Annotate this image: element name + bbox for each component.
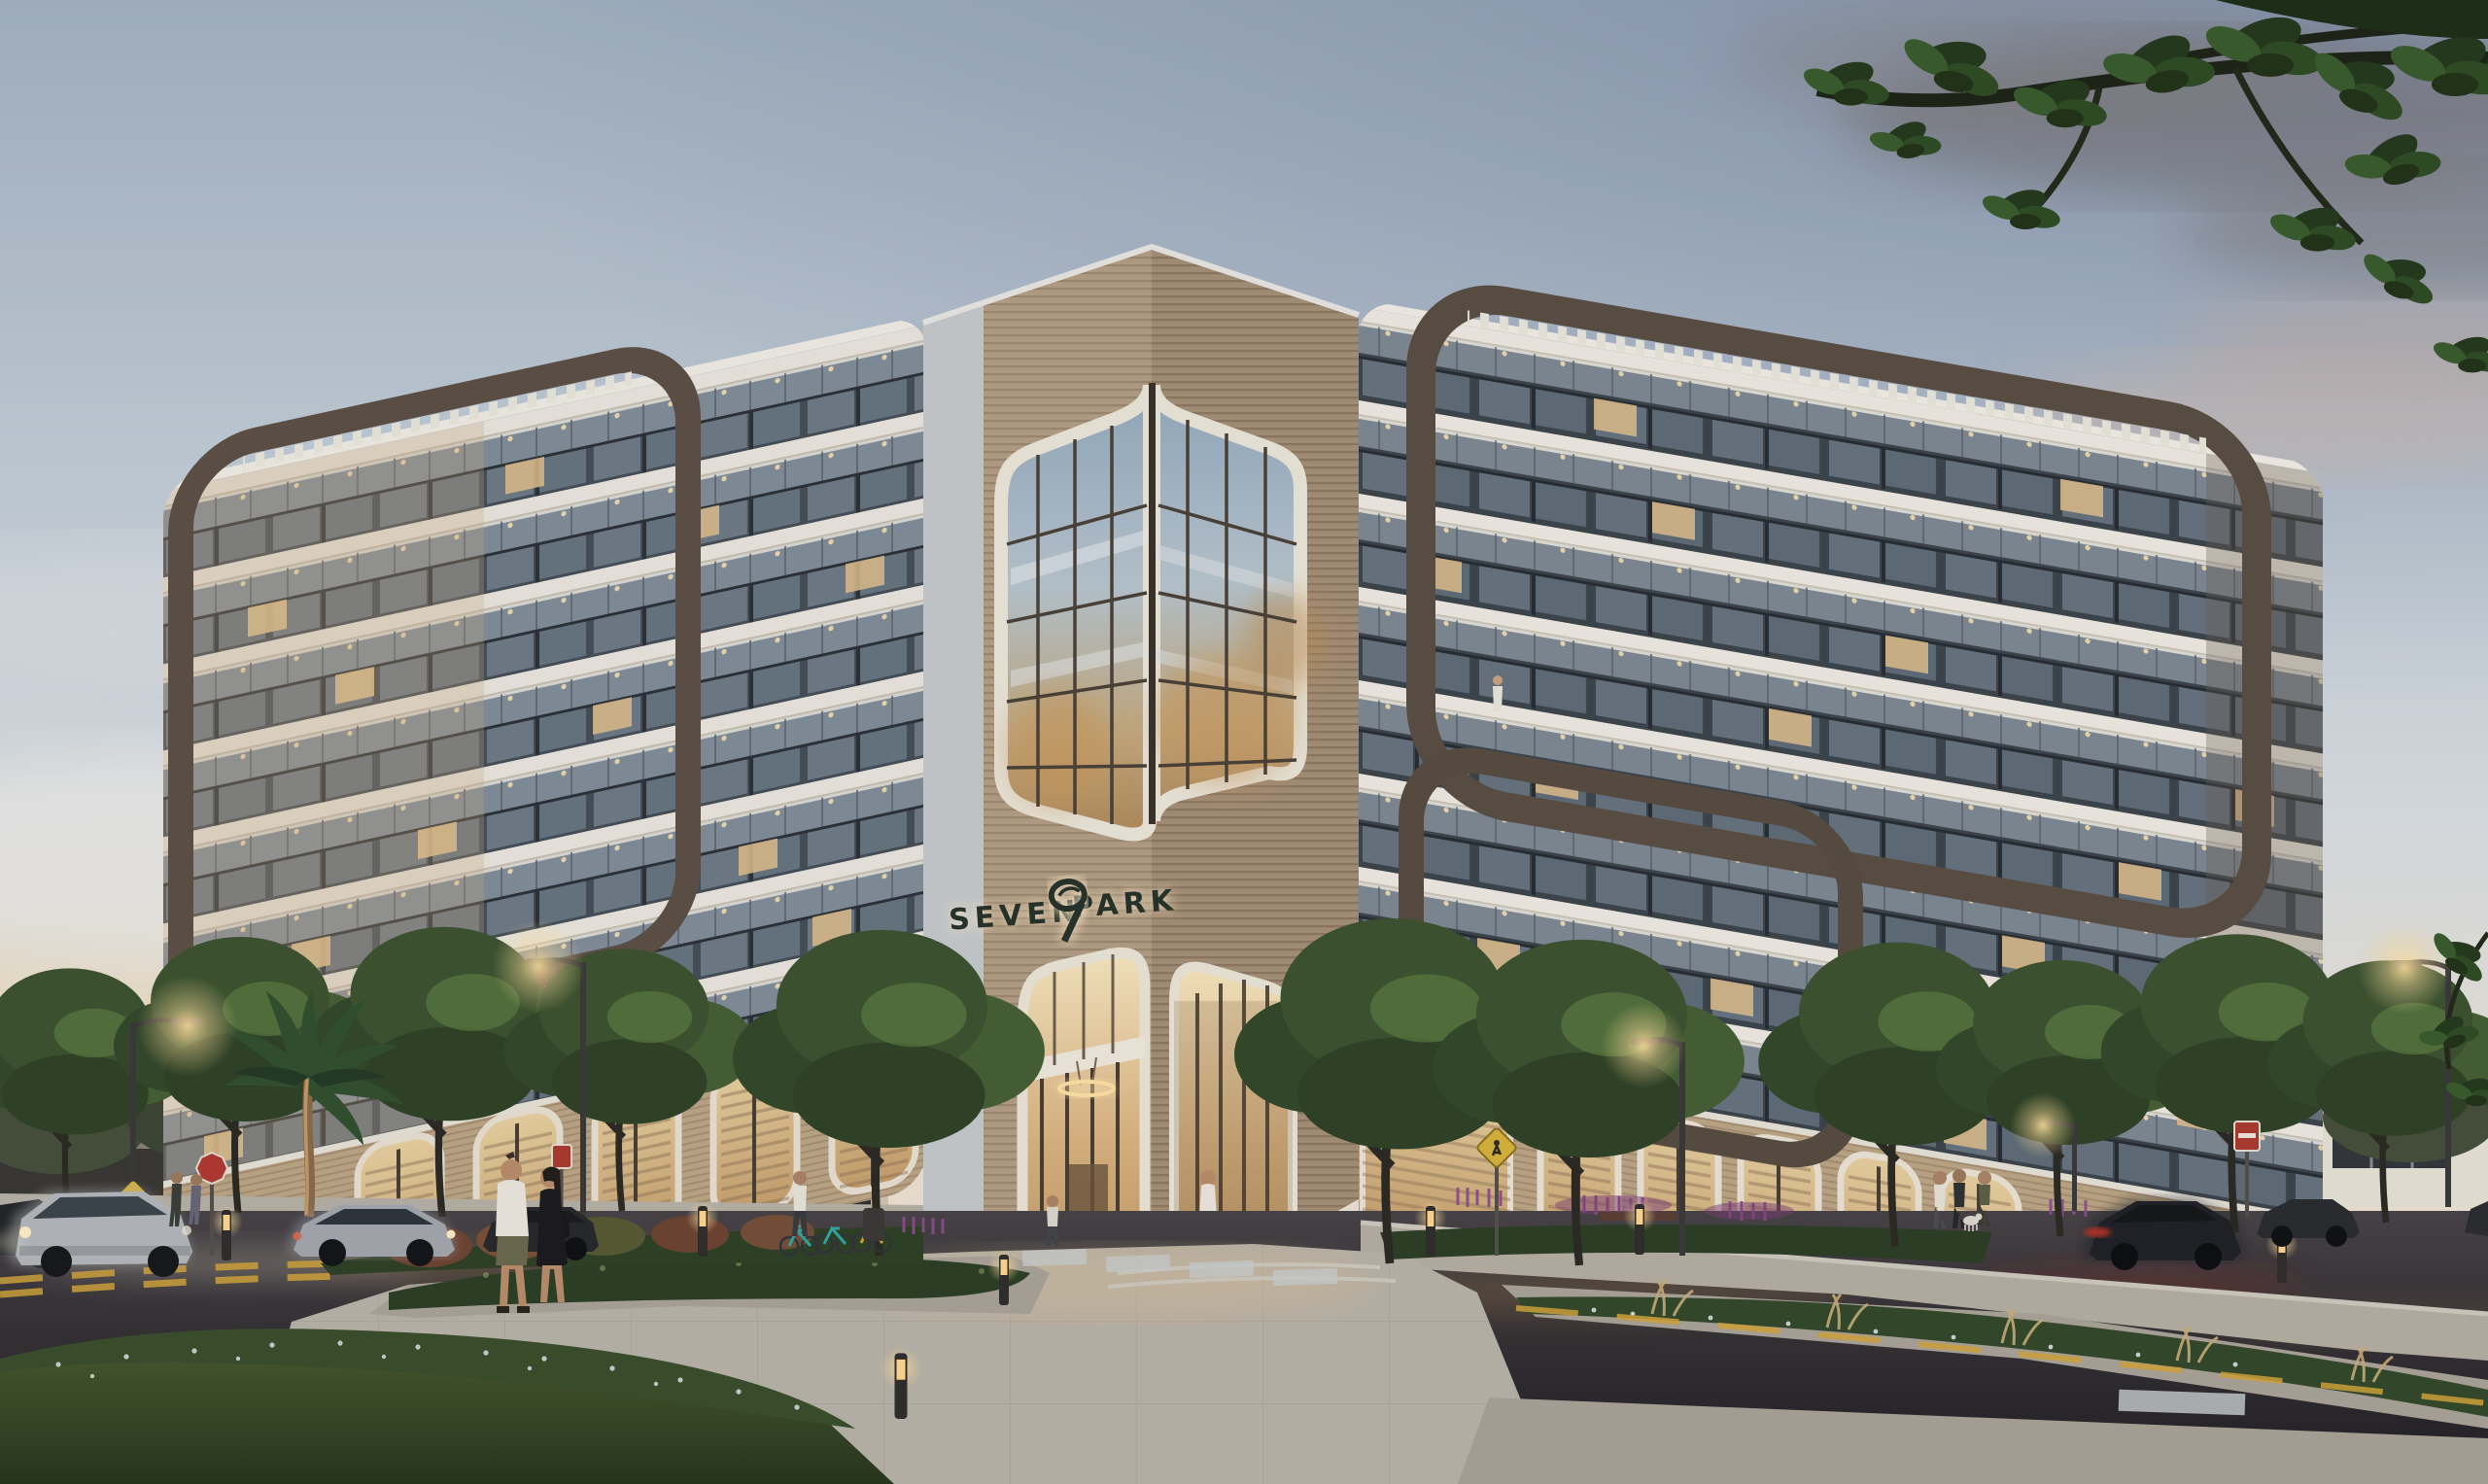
- vignette: [0, 0, 2488, 1484]
- rendering-canvas: SEVEN PARK SEVEN PARK: [0, 0, 2488, 1484]
- scene-svg: SEVEN PARK SEVEN PARK: [0, 0, 2488, 1484]
